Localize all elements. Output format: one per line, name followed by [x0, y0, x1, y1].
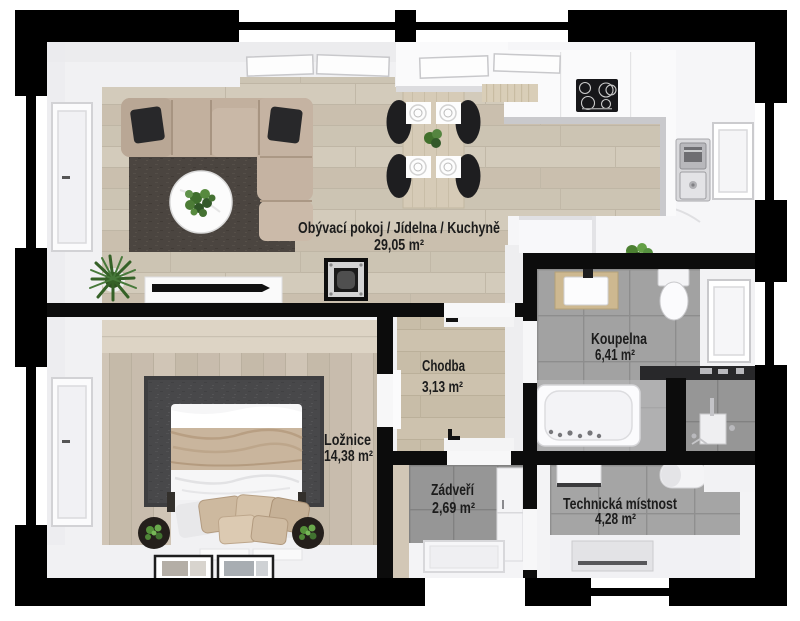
svg-text:14,38 m²: 14,38 m² — [324, 448, 373, 465]
svg-text:4,28 m²: 4,28 m² — [595, 511, 636, 528]
svg-text:Chodba: Chodba — [422, 358, 465, 375]
svg-text:6,41 m²: 6,41 m² — [595, 347, 635, 364]
svg-text:Zádveří: Zádveří — [431, 482, 475, 499]
svg-text:3,13 m²: 3,13 m² — [422, 379, 463, 396]
svg-text:29,05 m²: 29,05 m² — [374, 237, 424, 254]
svg-text:Obývací pokoj / Jídelna / Kuch: Obývací pokoj / Jídelna / Kuchyně — [298, 220, 500, 237]
svg-text:2,69 m²: 2,69 m² — [432, 500, 475, 517]
svg-text:Koupelna: Koupelna — [591, 331, 647, 348]
svg-text:Ložnice: Ložnice — [324, 432, 371, 449]
